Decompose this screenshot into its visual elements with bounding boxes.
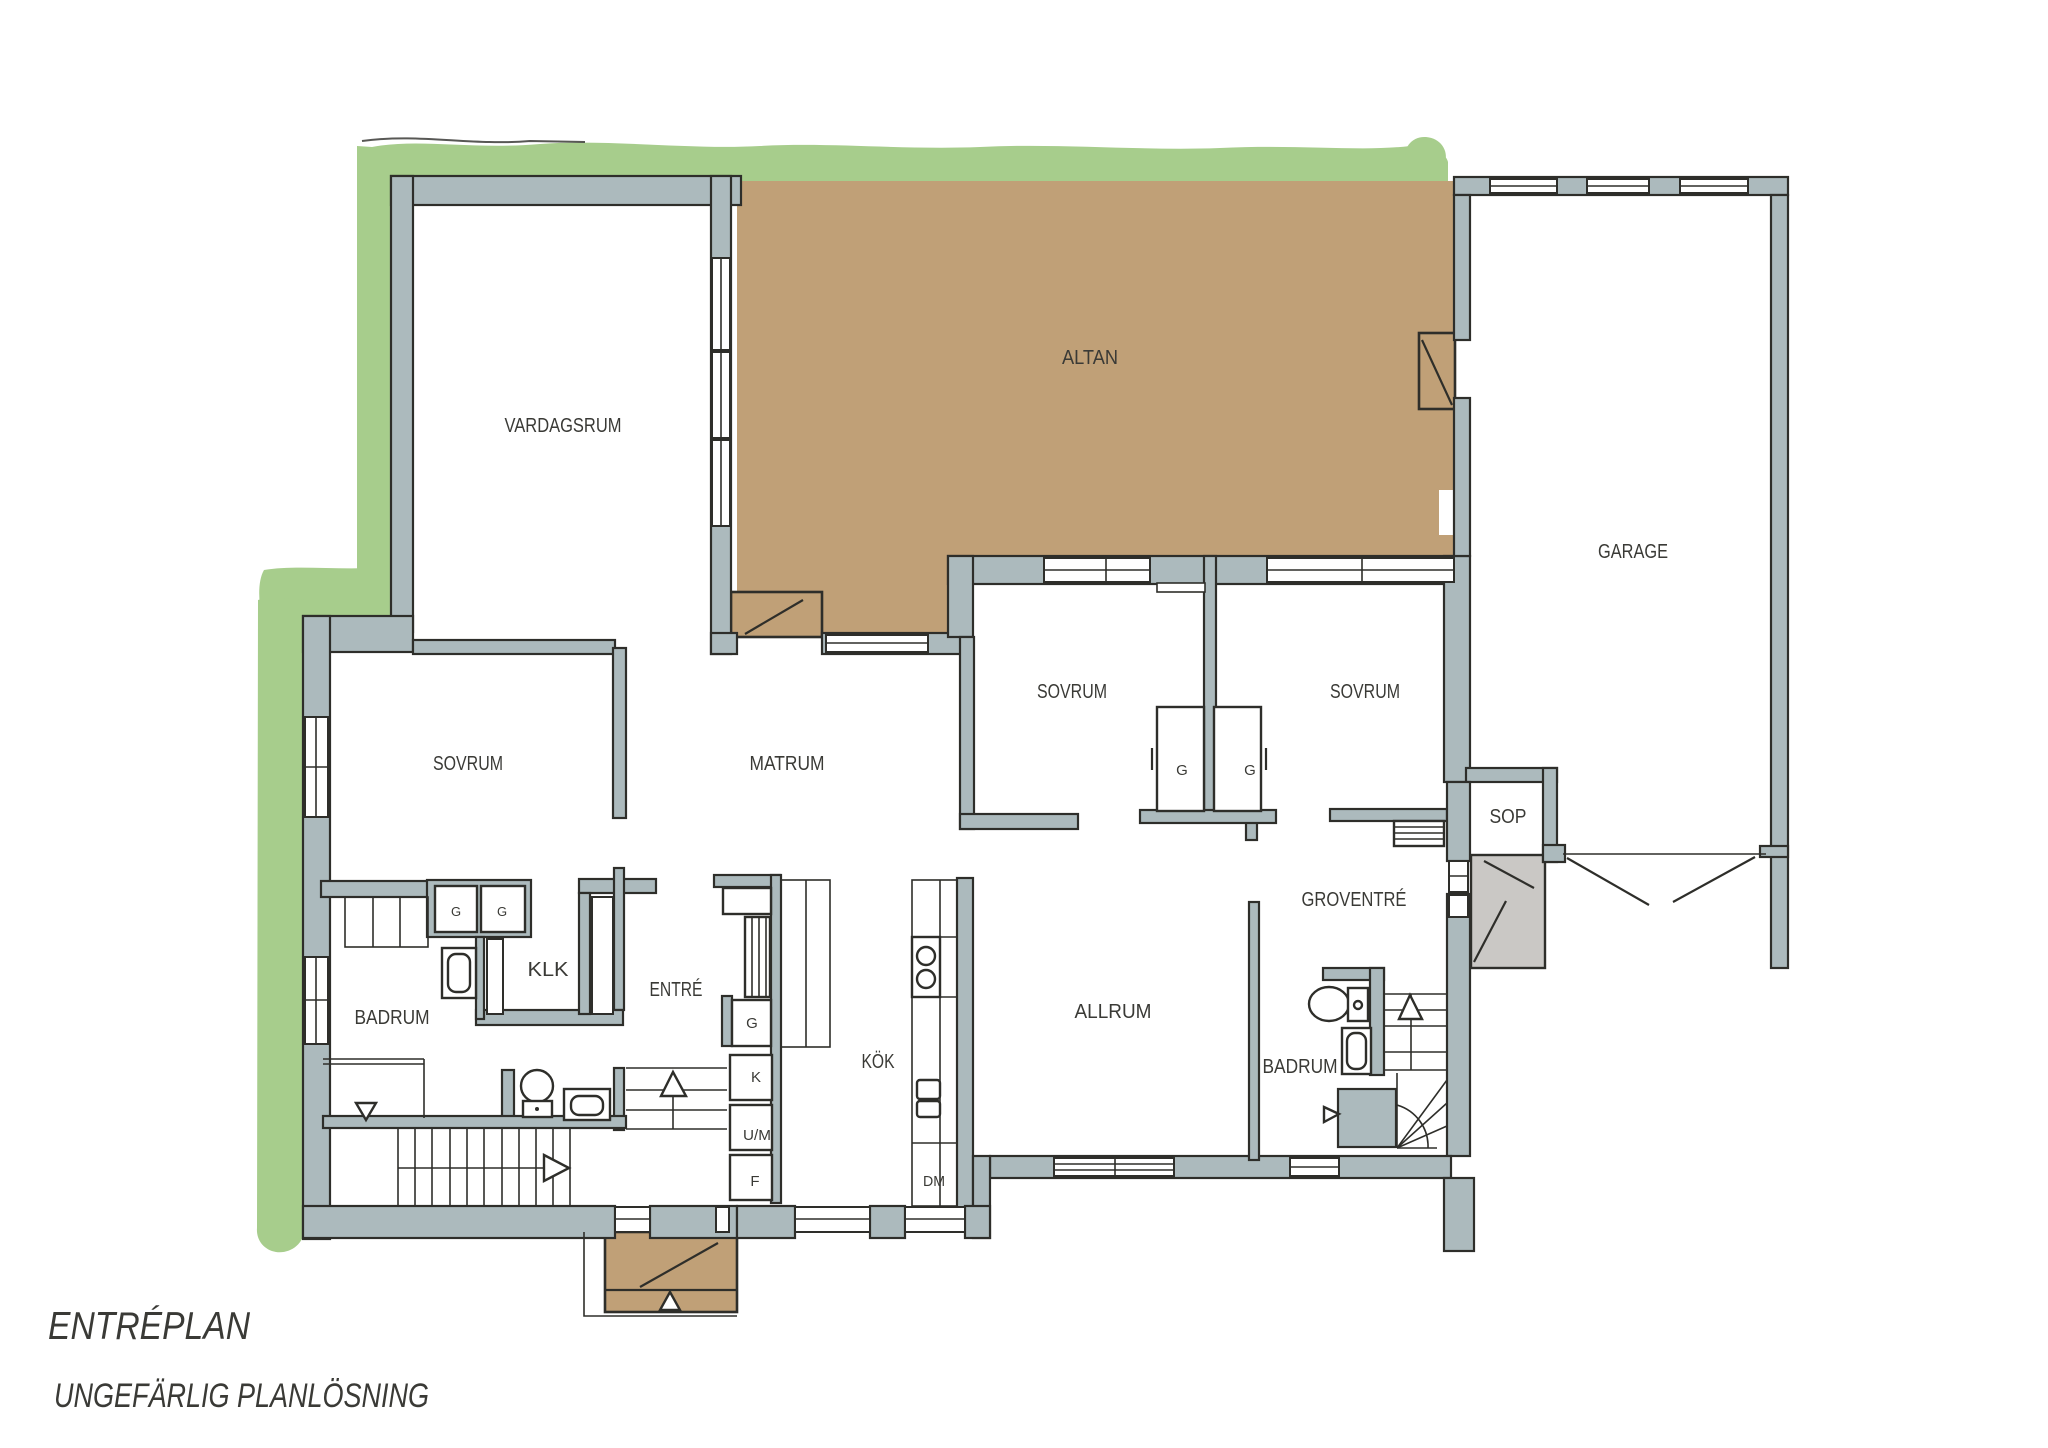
svg-text:SOP: SOP [1490,806,1527,828]
svg-text:VARDAGSRUM: VARDAGSRUM [505,415,622,437]
svg-text:KLK: KLK [528,959,570,981]
svg-text:G: G [451,904,461,919]
svg-text:DM: DM [923,1173,945,1190]
svg-text:ENTRÉPLAN: ENTRÉPLAN [48,1305,251,1348]
svg-text:ALTAN: ALTAN [1062,347,1118,369]
svg-text:ENTRÉ: ENTRÉ [650,978,703,1001]
svg-text:SOVRUM: SOVRUM [1037,681,1107,703]
svg-text:U/M: U/M [743,1127,771,1144]
svg-text:GROVENTRÉ: GROVENTRÉ [1302,888,1407,911]
svg-text:F: F [750,1173,759,1190]
svg-text:G: G [1244,762,1256,779]
svg-text:SOVRUM: SOVRUM [1330,681,1400,703]
svg-text:ALLRUM: ALLRUM [1075,1001,1152,1023]
svg-text:G: G [746,1015,758,1032]
svg-text:G: G [497,904,507,919]
svg-text:G: G [1176,762,1188,779]
svg-text:KÖK: KÖK [862,1051,896,1073]
svg-text:BADRUM: BADRUM [355,1007,430,1029]
svg-text:SOVRUM: SOVRUM [433,753,503,775]
svg-text:UNGEFÄRLIG PLANLÖSNING: UNGEFÄRLIG PLANLÖSNING [54,1377,429,1415]
svg-text:K: K [751,1069,761,1086]
svg-text:BADRUM: BADRUM [1263,1056,1338,1078]
svg-text:MATRUM: MATRUM [750,753,825,775]
svg-text:GARAGE: GARAGE [1598,541,1668,563]
